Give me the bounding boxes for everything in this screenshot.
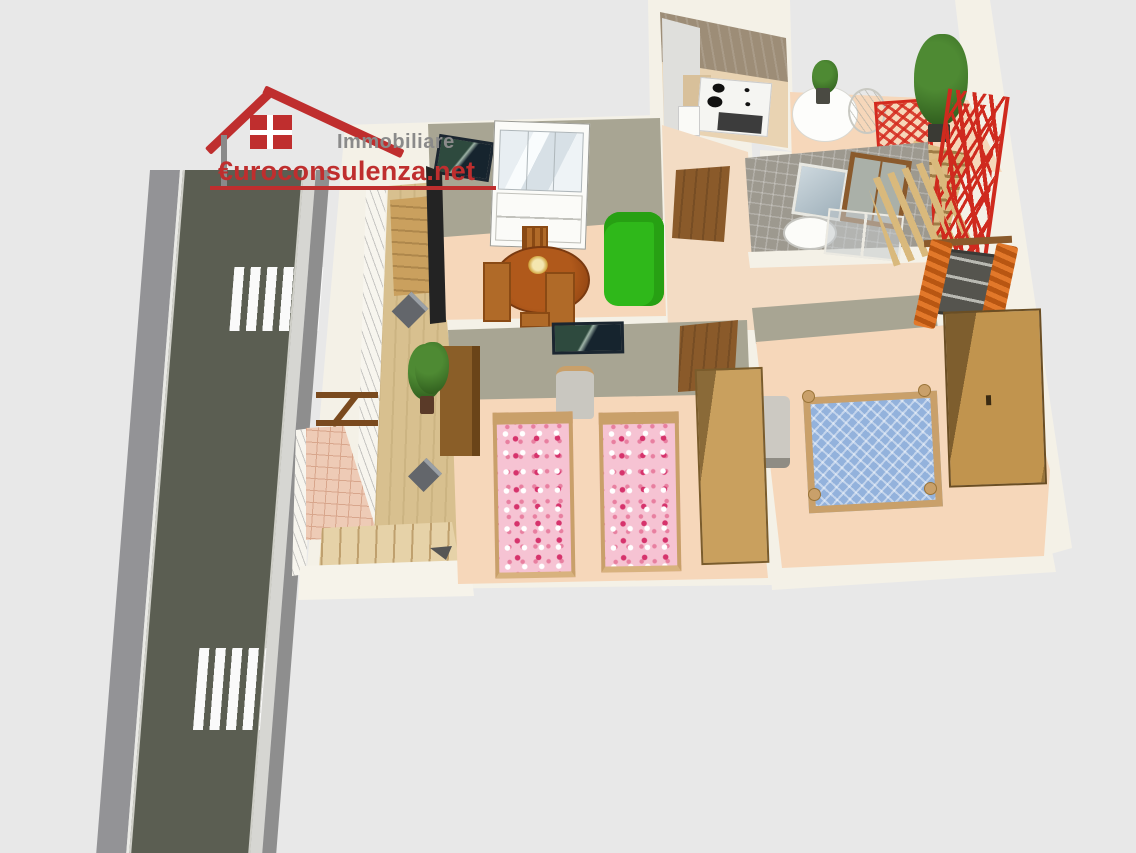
stove-knob — [745, 102, 750, 106]
house-window-icon — [250, 115, 292, 149]
logo-company-text: Immobiliare — [337, 131, 455, 154]
dining-chair-left — [483, 262, 511, 322]
logo-site-text: €uroconsulenza.net — [218, 156, 475, 187]
wall-bench — [520, 312, 550, 328]
agency-logo: Immobiliare €uroconsulenza.net — [90, 35, 430, 165]
stove-burner — [712, 83, 725, 93]
kitchen-oven — [717, 112, 762, 134]
bed-post — [924, 482, 937, 495]
double-bed-blue — [803, 391, 943, 514]
balcony-plant-pot — [420, 396, 434, 414]
logo-underline — [210, 186, 496, 190]
kids-bedroom-tv — [552, 321, 625, 354]
kids-dresser — [695, 367, 770, 565]
pergola-beam-top — [316, 392, 378, 398]
single-bed-right — [599, 411, 682, 572]
floorplan-render: Immobiliare €uroconsulenza.net — [0, 0, 1136, 853]
master-wardrobe — [943, 308, 1047, 487]
terrace-plant-pot — [816, 88, 830, 104]
balcony-pergola — [316, 392, 378, 426]
bed-post — [808, 488, 821, 501]
green-sofa — [604, 212, 664, 306]
single-bed-left — [493, 411, 576, 578]
pergola-beam-bottom — [316, 420, 378, 426]
bed-post — [918, 384, 931, 397]
stove-knob — [744, 88, 749, 92]
bed-post — [802, 390, 815, 403]
display-cabinet-glass-doors — [498, 130, 584, 193]
stove-burner — [707, 96, 723, 108]
